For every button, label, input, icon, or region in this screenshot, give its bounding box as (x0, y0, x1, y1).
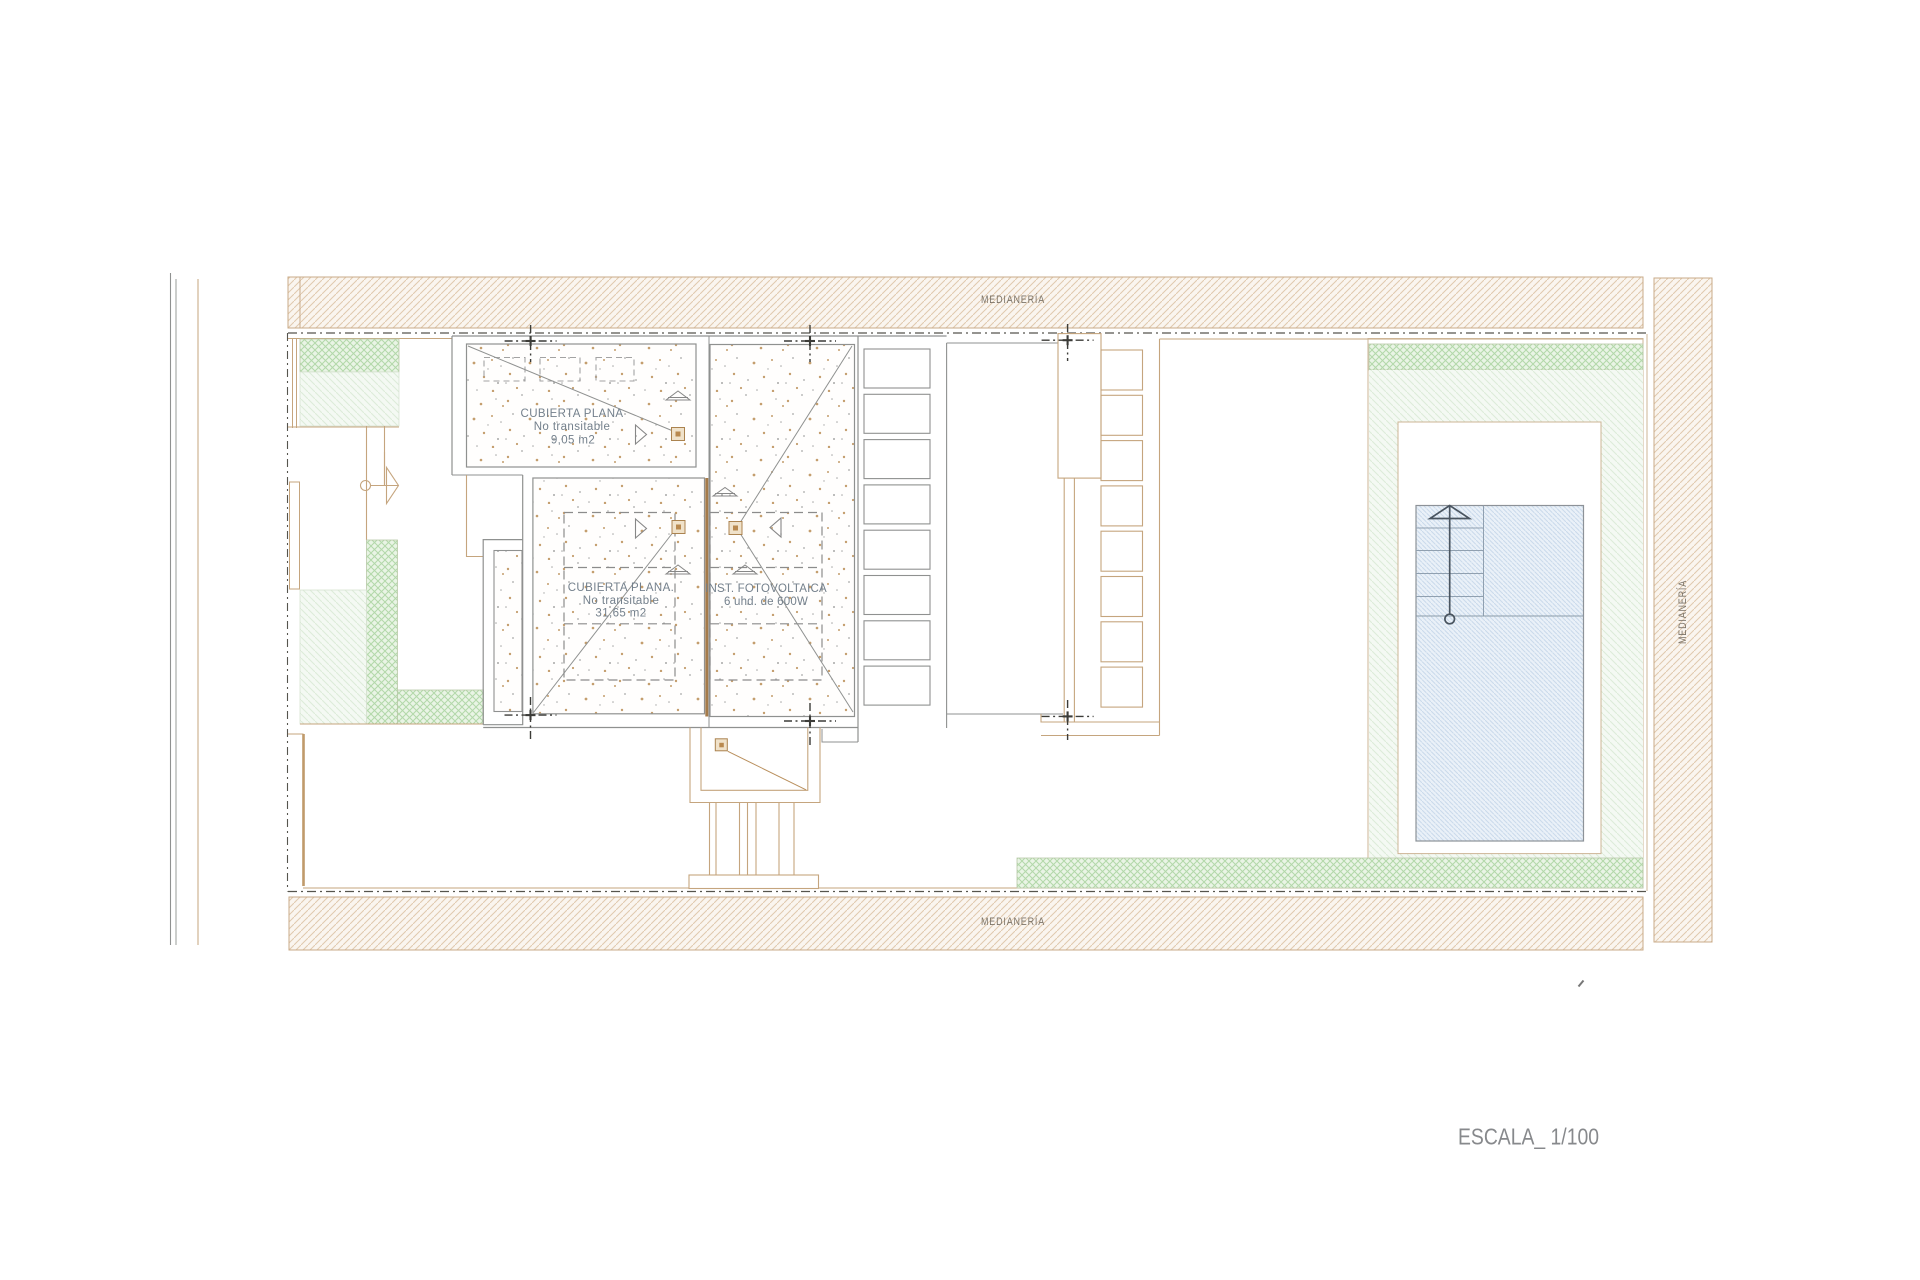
svg-text:MEDIANERÍA: MEDIANERÍA (1676, 580, 1689, 644)
svg-text:ESCALA_ 1/100: ESCALA_ 1/100 (1458, 1124, 1599, 1150)
svg-text:INST. FOTOVOLTAICA: INST. FOTOVOLTAICA (705, 583, 827, 595)
svg-text:MEDIANERÍA: MEDIANERÍA (981, 293, 1045, 306)
svg-text:MEDIANERÍA: MEDIANERÍA (981, 915, 1045, 928)
svg-text:CUBIERTA PLANA.: CUBIERTA PLANA. (568, 582, 675, 594)
svg-text:CUBIERTA PLANA: CUBIERTA PLANA (521, 408, 624, 420)
svg-text:No transitable: No transitable (534, 421, 611, 433)
svg-text:31,65 m2: 31,65 m2 (595, 608, 646, 620)
svg-text:6 uhd. de 600W: 6 uhd. de 600W (724, 596, 808, 608)
svg-text:9,05 m2: 9,05 m2 (551, 435, 595, 447)
svg-text:No transitable: No transitable (583, 595, 660, 607)
